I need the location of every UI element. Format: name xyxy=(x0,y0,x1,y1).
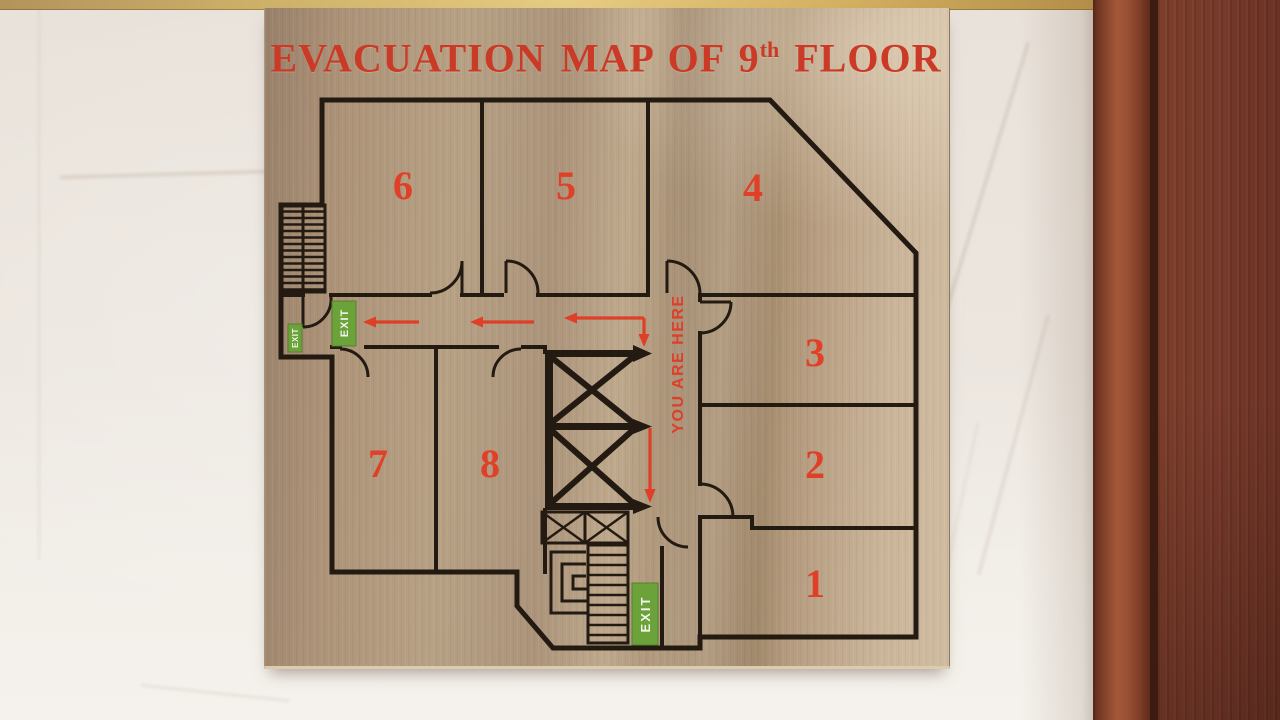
room-number-8: 8 xyxy=(480,441,500,486)
room-number-7: 7 xyxy=(368,441,388,486)
photo-of-evacuation-sign: EVACUATION MAP OF 9th FLOOR xyxy=(0,0,1280,720)
staircase-bottom xyxy=(542,512,628,643)
elevator-bank-icon xyxy=(545,345,652,514)
exit-label: EXIT xyxy=(339,309,351,337)
exit-label: EXIT xyxy=(638,596,653,633)
staircase-top-left xyxy=(281,205,325,292)
you-are-here-label: YOU ARE HERE xyxy=(670,294,687,433)
room-number-3: 3 xyxy=(805,330,825,375)
room-number-6: 6 xyxy=(393,163,413,208)
exit-sign-bottom: EXIT xyxy=(632,583,658,645)
floor-plan: YOU ARE HERE EXIT EXIT EXIT 6 5 4 3 2 1 … xyxy=(0,0,1280,720)
room-number-5: 5 xyxy=(556,163,576,208)
exit-sign-left-large: EXIT xyxy=(332,301,356,346)
exit-label: EXIT xyxy=(291,328,300,348)
exit-sign-left-small: EXIT xyxy=(288,324,302,352)
room-number-4: 4 xyxy=(743,165,763,210)
room-number-2: 2 xyxy=(805,442,825,487)
door-swings xyxy=(303,261,733,547)
room-number-1: 1 xyxy=(805,561,825,606)
